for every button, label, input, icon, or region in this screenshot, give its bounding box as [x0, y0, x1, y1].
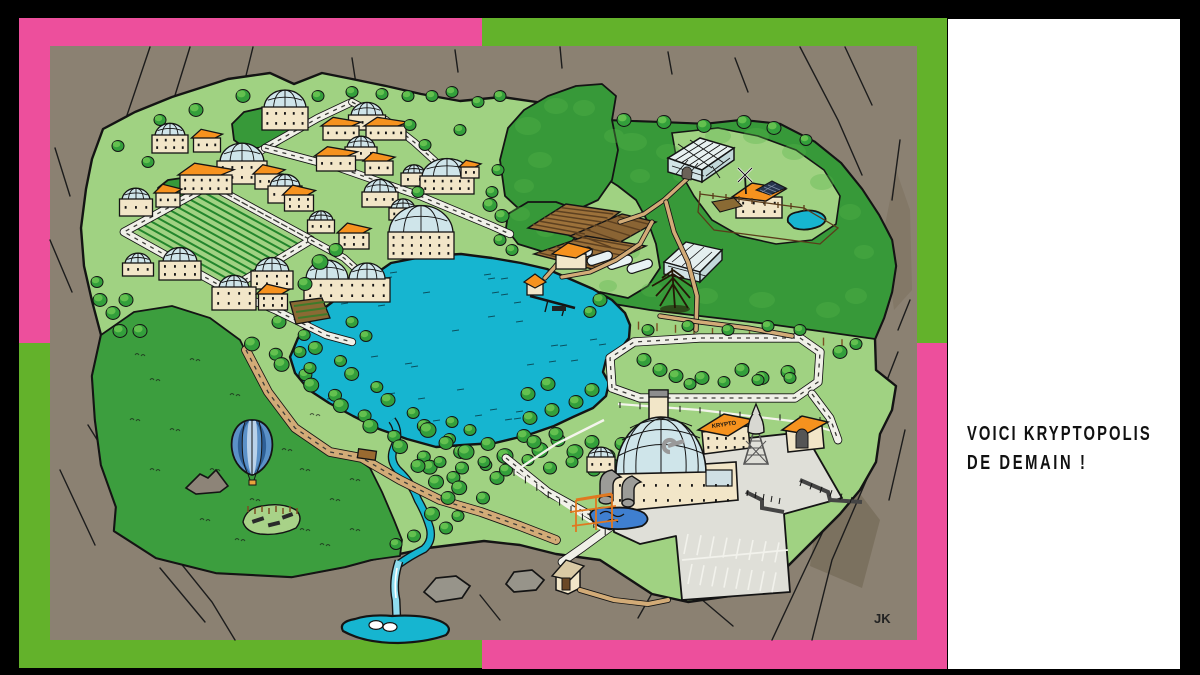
svg-text:DE DEMAIN !: DE DEMAIN ! [967, 451, 1087, 474]
svg-text:JK: JK [874, 611, 891, 626]
svg-text:VOICI KRYPTOPOLIS: VOICI KRYPTOPOLIS [967, 422, 1152, 445]
